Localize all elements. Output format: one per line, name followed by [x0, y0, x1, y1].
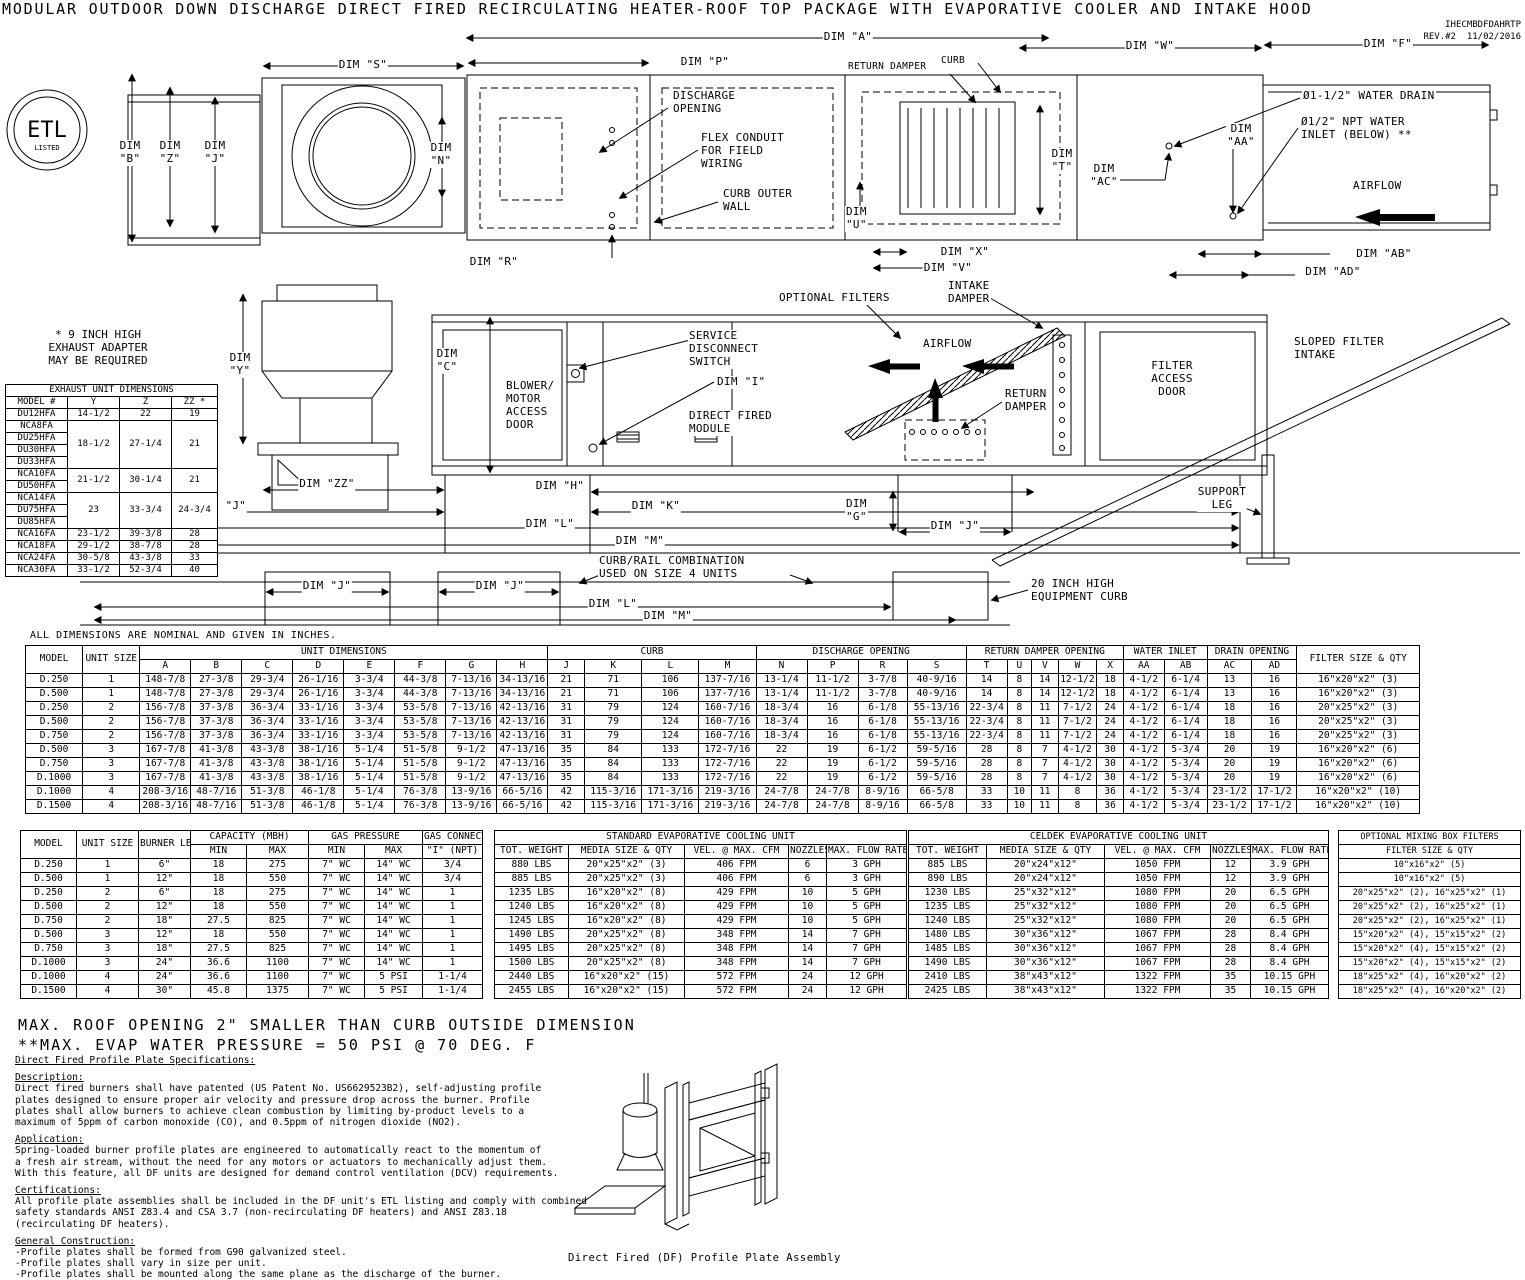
- table-cell: 11-1/2: [807, 674, 858, 688]
- table-cell: 11: [1032, 716, 1059, 730]
- table-cell: 30-5/8: [68, 553, 120, 565]
- table-cell: 20"x24"x12": [987, 859, 1105, 873]
- table-row: 1235 LBS16"x20"x2" (8)429 FPM105 GPH: [495, 887, 907, 901]
- table-cell: 35: [548, 744, 585, 758]
- table-cell: 45.8: [191, 985, 247, 999]
- table-cell: 71: [585, 674, 642, 688]
- return-damper-box: [905, 420, 985, 460]
- table-row: D.750218"27.58257" WC14" WC1: [21, 915, 483, 929]
- table-cell: VEL. @ MAX. CFM: [1105, 845, 1211, 859]
- table-cell: 44-3/8: [395, 674, 446, 688]
- table-cell: 20"x25"x2" (3): [1297, 702, 1420, 716]
- table-cell: 8: [1058, 786, 1097, 800]
- spec-text-general-construction: -Profile plates shall be formed from G90…: [15, 1247, 590, 1280]
- table-cell: 42-13/16: [497, 730, 548, 744]
- exhaust-fan-elevation: [277, 285, 377, 301]
- table-cell: X: [1097, 660, 1124, 674]
- table-row: 1230 LBS25"x32"x12"1080 FPM206.5 GPH: [909, 887, 1329, 901]
- table-cell: 1100: [247, 971, 309, 985]
- table-cell: 16: [1252, 716, 1297, 730]
- support-leg-label: SUPPORT LEG: [1197, 486, 1247, 512]
- table-row: D.5003167-7/841-3/843-3/838-1/165-1/451-…: [26, 744, 1420, 758]
- table-cell: 1100: [247, 957, 309, 971]
- dim-m2-label: DIM "M": [643, 610, 693, 623]
- table-row: D.10003167-7/841-3/843-3/838-1/165-1/451…: [26, 772, 1420, 786]
- table-row: EXHAUST UNIT DIMENSIONS: [6, 385, 218, 397]
- table-cell: 4: [77, 971, 139, 985]
- table-cell: 160-7/16: [699, 730, 756, 744]
- table-row: 890 LBS20"x24"x12"1050 FPM123.9 GPH: [909, 873, 1329, 887]
- table-cell: D.750: [26, 758, 83, 772]
- table-cell: MAX. FLOW RATE: [1251, 845, 1329, 859]
- table-cell: 17-1/2: [1252, 800, 1297, 814]
- table-cell: NOZZLES: [789, 845, 827, 859]
- table-row: 1490 LBS20"x25"x2" (8)348 FPM147 GPH: [495, 929, 907, 943]
- table-cell: 33: [966, 800, 1007, 814]
- table-cell: 20"x25"x2" (2), 16"x25"x2" (1): [1339, 915, 1521, 929]
- airflow-label: AIRFLOW: [1352, 180, 1402, 193]
- table-cell: 20"x25"x2" (3): [1297, 716, 1420, 730]
- table-row: D.1000424"36.611007" WC5 PSI1-1/4: [21, 971, 483, 985]
- table-cell: 43-3/8: [242, 772, 293, 786]
- table-cell: 14" WC: [365, 859, 423, 873]
- table-cell: 12: [1211, 873, 1251, 887]
- table-cell: 7-13/16: [446, 730, 497, 744]
- table-cell: 1080 FPM: [1105, 887, 1211, 901]
- table-cell: 36-3/4: [242, 730, 293, 744]
- table-cell: 890 LBS: [909, 873, 987, 887]
- table-cell: 14" WC: [365, 929, 423, 943]
- table-cell: DU25HFA: [6, 433, 68, 445]
- table-cell: 156-7/8: [140, 716, 191, 730]
- table-cell: 12: [1211, 859, 1251, 873]
- table-cell: 6.5 GPH: [1251, 915, 1329, 929]
- dim-m-label: DIM "M": [615, 535, 665, 548]
- table-cell: 13-9/16: [446, 800, 497, 814]
- table-cell: 10"x16"x2" (5): [1339, 873, 1521, 887]
- table-cell: 76-3/8: [395, 786, 446, 800]
- table-cell: 3: [83, 758, 140, 772]
- dim-zz-label: DIM "ZZ": [298, 478, 355, 491]
- table-cell: 106: [642, 674, 699, 688]
- table-cell: VEL. @ MAX. CFM: [685, 845, 789, 859]
- table-cell: 36.6: [191, 957, 247, 971]
- table-cell: D.250: [21, 859, 77, 873]
- table-cell: TOT. WEIGHT: [495, 845, 569, 859]
- table-cell: 40-9/16: [907, 688, 966, 702]
- table-cell: 53-5/8: [395, 702, 446, 716]
- table-cell: 7-13/16: [446, 674, 497, 688]
- table-cell: Y: [68, 397, 120, 409]
- table-cell: 43-3/8: [242, 744, 293, 758]
- table-cell: 41-3/8: [191, 744, 242, 758]
- table-cell: D.1500: [21, 985, 77, 999]
- table-cell: FILTER SIZE & QTY: [1297, 646, 1420, 674]
- table-cell: 208-3/16: [140, 786, 191, 800]
- table-cell: 115-3/16: [585, 800, 642, 814]
- table-cell: 19: [1252, 772, 1297, 786]
- table-cell: NCA18FA: [6, 541, 68, 553]
- table-cell: 16"x20"x2" (6): [1297, 744, 1420, 758]
- table-row: 2455 LBS16"x20"x2" (15)572 FPM2412 GPH: [495, 985, 907, 999]
- table-cell: 1240 LBS: [495, 901, 569, 915]
- table-row: NCA18FA29-1/238-7/828: [6, 541, 218, 553]
- table-cell: 8: [1007, 702, 1031, 716]
- table-cell: 7" WC: [309, 915, 365, 929]
- table-cell: 13: [1207, 688, 1252, 702]
- table-cell: 10: [789, 915, 827, 929]
- table-row: D.10004208-3/1648-7/1651-3/846-1/85-1/47…: [26, 786, 1420, 800]
- table-cell: 6-1/4: [1164, 674, 1207, 688]
- table-cell: UNIT DIMENSIONS: [140, 646, 548, 660]
- table-cell: 16: [807, 702, 858, 716]
- table-cell: 124: [642, 730, 699, 744]
- table-cell: 6: [789, 873, 827, 887]
- max-evap-note: **MAX. EVAP WATER PRESSURE = 50 PSI @ 70…: [18, 1036, 536, 1054]
- table-row: NCA8FA18-1/227-1/421: [6, 421, 218, 433]
- table-cell: 4-1/2: [1123, 674, 1164, 688]
- table-cell: 7" WC: [309, 901, 365, 915]
- profile-plate-caption: Direct Fired (DF) Profile Plate Assembly: [568, 1252, 841, 1264]
- table-cell: 1: [423, 943, 483, 957]
- return-damper-section: [845, 75, 1077, 240]
- table-row: NCA16FA23-1/239-3/828: [6, 529, 218, 541]
- table-cell: NCA14FA: [6, 493, 68, 505]
- table-cell: 25"x32"x12": [987, 901, 1105, 915]
- table-cell: 1235 LBS: [495, 887, 569, 901]
- table-cell: 3: [83, 772, 140, 786]
- table-cell: 36-3/4: [242, 702, 293, 716]
- table-cell: 6.5 GPH: [1251, 887, 1329, 901]
- table-cell: 25"x32"x12": [987, 887, 1105, 901]
- table-cell: 572 FPM: [685, 985, 789, 999]
- table-cell: 20"x25"x2" (8): [569, 943, 685, 957]
- table-cell: MIN: [191, 845, 247, 859]
- table-cell: 3-7/8: [858, 674, 907, 688]
- table-cell: 5-3/4: [1164, 758, 1207, 772]
- table-cell: 22: [756, 744, 807, 758]
- table-cell: 35: [1211, 971, 1251, 985]
- table-cell: 24: [789, 971, 827, 985]
- table-cell: 3-3/4: [344, 730, 395, 744]
- table-cell: 20: [1211, 901, 1251, 915]
- table-cell: 3-3/4: [344, 688, 395, 702]
- table-cell: 42: [548, 800, 585, 814]
- table-cell: 16: [1252, 674, 1297, 688]
- table-cell: 37-3/8: [191, 716, 242, 730]
- table-cell: S: [907, 660, 966, 674]
- table-cell: 59-5/16: [907, 772, 966, 786]
- table-cell: OPTIONAL MIXING BOX FILTERS: [1339, 831, 1521, 845]
- table-cell: D.500: [21, 873, 77, 887]
- table-cell: 14: [966, 674, 1007, 688]
- table-cell: 13-1/4: [756, 674, 807, 688]
- table-cell: 7" WC: [309, 957, 365, 971]
- table-cell: 5-1/4: [344, 786, 395, 800]
- table-cell: 429 FPM: [685, 901, 789, 915]
- table-cell: 28: [1211, 943, 1251, 957]
- table-row: NCA10FA21-1/230-1/421: [6, 469, 218, 481]
- table-cell: 8: [1007, 674, 1031, 688]
- service-switch-label: SERVICE DISCONNECT SWITCH: [688, 330, 759, 369]
- table-cell: A: [140, 660, 191, 674]
- table-row: 15"x20"x2" (4), 15"x15"x2" (2): [1339, 957, 1521, 971]
- table-cell: 16"x20"x2" (6): [1297, 772, 1420, 786]
- burner-gas-table: MODELUNIT SIZEBURNER LENGTHCAPACITY (MBH…: [20, 830, 483, 999]
- table-cell: 14" WC: [365, 887, 423, 901]
- table-cell: 5-3/4: [1164, 800, 1207, 814]
- table-cell: WATER INLET: [1123, 646, 1207, 660]
- table-cell: ZZ *: [172, 397, 218, 409]
- table-cell: 429 FPM: [685, 915, 789, 929]
- table-cell: 66-5/8: [907, 800, 966, 814]
- table-cell: 40: [172, 565, 218, 577]
- table-cell: 26-1/16: [293, 688, 344, 702]
- table-row: 1240 LBS16"x20"x2" (8)429 FPM105 GPH: [495, 901, 907, 915]
- table-cell: 84: [585, 758, 642, 772]
- mixing-box-filters-table: OPTIONAL MIXING BOX FILTERSFILTER SIZE &…: [1338, 830, 1521, 999]
- table-cell: CURB: [548, 646, 756, 660]
- dim-i-label: DIM "I": [716, 376, 766, 389]
- table-cell: 37-3/8: [191, 730, 242, 744]
- table-cell: 22-3/4: [966, 702, 1007, 716]
- table-cell: 219-3/16: [699, 786, 756, 800]
- table-cell: 14: [1032, 674, 1059, 688]
- spec-heading-general-construction: General Construction:: [15, 1236, 590, 1247]
- table-cell: 20: [1207, 744, 1252, 758]
- table-cell: 16: [1252, 730, 1297, 744]
- table-cell: 7" WC: [309, 985, 365, 999]
- table-cell: 18: [191, 873, 247, 887]
- table-cell: 51-3/8: [242, 786, 293, 800]
- table-cell: 7 GPH: [827, 943, 907, 957]
- table-cell: 167-7/8: [140, 744, 191, 758]
- table-cell: 6-1/8: [858, 730, 907, 744]
- table-cell: 38-1/16: [293, 772, 344, 786]
- table-cell: 51-5/8: [395, 758, 446, 772]
- water-drain-label: Ø1-1/2" WATER DRAIN: [1302, 90, 1436, 103]
- table-cell: G: [446, 660, 497, 674]
- table-row: D.750318"27.58257" WC14" WC1: [21, 943, 483, 957]
- table-cell: 825: [247, 943, 309, 957]
- table-cell: 219-3/16: [699, 800, 756, 814]
- table-cell: NCA8FA: [6, 421, 68, 433]
- table-cell: NCA16FA: [6, 529, 68, 541]
- table-cell: D.500: [26, 688, 83, 702]
- return-damper-side-label: RETURN DAMPER: [1004, 388, 1048, 414]
- table-row: D.7502156-7/837-3/836-3/433-1/163-3/453-…: [26, 730, 1420, 744]
- table-cell: 3: [77, 929, 139, 943]
- table-row: 2410 LBS38"x43"x12"1322 FPM3510.15 GPH: [909, 971, 1329, 985]
- table-cell: 66-5/16: [497, 786, 548, 800]
- dim-j2-label: DIM "J": [930, 520, 980, 533]
- table-cell: 16"x20"x2" (6): [1297, 758, 1420, 772]
- table-row: 1245 LBS16"x20"x2" (8)429 FPM105 GPH: [495, 915, 907, 929]
- table-cell: 14: [789, 929, 827, 943]
- dim-f-label: DIM "F": [1363, 38, 1413, 51]
- table-cell: 42: [548, 786, 585, 800]
- table-cell: 33: [966, 786, 1007, 800]
- table-cell: 6-1/8: [858, 702, 907, 716]
- optional-filters-label: OPTIONAL FILTERS: [778, 292, 891, 305]
- sheet-title: MODULAR OUTDOOR DOWN DISCHARGE DIRECT FI…: [2, 0, 1313, 18]
- table-cell: DU33HFA: [6, 457, 68, 469]
- table-cell: 27.5: [191, 915, 247, 929]
- table-cell: 406 FPM: [685, 859, 789, 873]
- table-cell: AA: [1123, 660, 1164, 674]
- table-cell: 33-1/2: [68, 565, 120, 577]
- table-cell: 28: [1211, 929, 1251, 943]
- side-view-linework: [0, 280, 1525, 635]
- table-cell: 8: [1007, 758, 1031, 772]
- table-cell: 14" WC: [365, 915, 423, 929]
- table-cell: R: [858, 660, 907, 674]
- table-cell: 51-3/8: [242, 800, 293, 814]
- table-cell: 38-7/8: [120, 541, 172, 553]
- table-cell: 14" WC: [365, 873, 423, 887]
- table-cell: 79: [585, 716, 642, 730]
- table-cell: BURNER LENGTH: [139, 831, 191, 859]
- table-cell: 406 FPM: [685, 873, 789, 887]
- table-cell: 16"x20"x2" (15): [569, 971, 685, 985]
- table-cell: 10.15 GPH: [1251, 985, 1329, 999]
- dim-j4-label: DIM "J": [475, 580, 525, 593]
- table-cell: 18-3/4: [756, 716, 807, 730]
- table-cell: 30: [1097, 744, 1124, 758]
- table-cell: 1050 FPM: [1105, 859, 1211, 873]
- table-cell: 18"x25"x2" (4), 16"x20"x2" (2): [1339, 971, 1521, 985]
- table-cell: 18: [1207, 702, 1252, 716]
- dim-y-label: DIM "Y": [229, 352, 252, 378]
- table-cell: U: [1007, 660, 1031, 674]
- table-cell: 172-7/16: [699, 744, 756, 758]
- table-cell: 9-1/2: [446, 744, 497, 758]
- table-row: ABCDEFGHJKLMNPRSTUVWXAAABACAD: [26, 660, 1420, 674]
- table-cell: 66-5/8: [907, 786, 966, 800]
- table-cell: 18-3/4: [756, 730, 807, 744]
- table-cell: 12 GPH: [827, 985, 907, 999]
- dim-l-label: DIM "L": [525, 518, 575, 531]
- table-cell: 14" WC: [365, 943, 423, 957]
- table-cell: 5 GPH: [827, 915, 907, 929]
- table-cell: 38-1/16: [293, 744, 344, 758]
- table-cell: 1067 FPM: [1105, 929, 1211, 943]
- table-cell: 16: [1252, 702, 1297, 716]
- table-cell: 24: [789, 985, 827, 999]
- table-cell: 3/4: [423, 873, 483, 887]
- table-cell: 42-13/16: [497, 716, 548, 730]
- table-row: D.2501148-7/827-3/829-3/426-1/163-3/444-…: [26, 674, 1420, 688]
- table-cell: 16"x20"x2" (3): [1297, 688, 1420, 702]
- table-row: D.25016"182757" WC14" WC3/4: [21, 859, 483, 873]
- table-cell: D: [293, 660, 344, 674]
- table-cell: 20"x25"x2" (3): [1297, 730, 1420, 744]
- table-cell: 4-1/2: [1123, 758, 1164, 772]
- dim-a-label: DIM "A": [823, 31, 873, 44]
- table-cell: 172-7/16: [699, 772, 756, 786]
- table-cell: 7-13/16: [446, 716, 497, 730]
- table-cell: H: [497, 660, 548, 674]
- table-cell: 16"x20"x2" (8): [569, 901, 685, 915]
- table-cell: 4-1/2: [1123, 688, 1164, 702]
- equipment-curb-label: 20 INCH HIGH EQUIPMENT CURB: [1030, 578, 1129, 604]
- table-cell: 28: [966, 744, 1007, 758]
- table-row: 1240 LBS25"x32"x12"1080 FPM206.5 GPH: [909, 915, 1329, 929]
- table-cell: 16: [1252, 688, 1297, 702]
- table-cell: 11: [1032, 730, 1059, 744]
- table-cell: 51-5/8: [395, 744, 446, 758]
- table-row: 2440 LBS16"x20"x2" (15)572 FPM2412 GPH: [495, 971, 907, 985]
- dimension-lines: [132, 38, 1488, 275]
- table-cell: 40-9/16: [907, 674, 966, 688]
- table-cell: 8.4 GPH: [1251, 957, 1329, 971]
- table-cell: 18: [1207, 716, 1252, 730]
- table-cell: 880 LBS: [495, 859, 569, 873]
- table-cell: 42-13/16: [497, 702, 548, 716]
- table-cell: 5-3/4: [1164, 772, 1207, 786]
- table-cell: 24-3/4: [172, 493, 218, 529]
- table-cell: P: [807, 660, 858, 674]
- table-cell: 1080 FPM: [1105, 915, 1211, 929]
- table-cell: V: [1032, 660, 1059, 674]
- table-cell: DU85HFA: [6, 517, 68, 529]
- table-cell: 14: [966, 688, 1007, 702]
- table-cell: 8: [1007, 688, 1031, 702]
- table-cell: 19: [807, 758, 858, 772]
- table-cell: 14" WC: [365, 957, 423, 971]
- table-cell: 1245 LBS: [495, 915, 569, 929]
- max-roof-note: MAX. ROOF OPENING 2" SMALLER THAN CURB O…: [18, 1016, 636, 1034]
- table-cell: 15"x20"x2" (4), 15"x15"x2" (2): [1339, 929, 1521, 943]
- table-cell: 167-7/8: [140, 758, 191, 772]
- table-row: D.5002156-7/837-3/836-3/433-1/163-3/453-…: [26, 716, 1420, 730]
- table-cell: 10.15 GPH: [1251, 971, 1329, 985]
- table-cell: D.750: [26, 730, 83, 744]
- table-cell: 19: [807, 772, 858, 786]
- table-cell: 20"x25"x2" (3): [569, 873, 685, 887]
- dim-x-label: DIM "X": [940, 246, 990, 259]
- table-row: D.15004208-3/1648-7/1651-3/846-1/85-1/47…: [26, 800, 1420, 814]
- table-cell: 14-1/2: [68, 409, 120, 421]
- table-cell: 12 GPH: [827, 971, 907, 985]
- dim-j-label: DIM "J": [204, 140, 227, 166]
- table-cell: GAS PRESSURE: [309, 831, 423, 845]
- table-cell: 5 PSI: [365, 985, 423, 999]
- table-cell: 10: [789, 901, 827, 915]
- table-cell: 1: [83, 688, 140, 702]
- table-cell: 171-3/16: [642, 800, 699, 814]
- table-cell: 1: [423, 915, 483, 929]
- table-cell: D.500: [21, 901, 77, 915]
- table-cell: 1480 LBS: [909, 929, 987, 943]
- dim-p-label: DIM "P": [680, 56, 730, 69]
- table-cell: 16"x20"x2" (15): [569, 985, 685, 999]
- table-cell: 55-13/16: [907, 716, 966, 730]
- table-row: D.1500430"45.813757" WC5 PSI1-1/4: [21, 985, 483, 999]
- table-cell: 10: [789, 887, 827, 901]
- table-cell: 20: [1211, 915, 1251, 929]
- intake-hood-section: [1263, 85, 1490, 230]
- table-cell: 24": [139, 971, 191, 985]
- table-cell: 53-5/8: [395, 716, 446, 730]
- table-cell: 1: [77, 859, 139, 873]
- table-cell: NOZZLES: [1211, 845, 1251, 859]
- table-cell: 275: [247, 887, 309, 901]
- table-cell: 79: [585, 730, 642, 744]
- table-cell: 12-1/2: [1058, 674, 1097, 688]
- table-cell: 22: [756, 758, 807, 772]
- table-cell: STANDARD EVAPORATIVE COOLING UNIT: [495, 831, 907, 845]
